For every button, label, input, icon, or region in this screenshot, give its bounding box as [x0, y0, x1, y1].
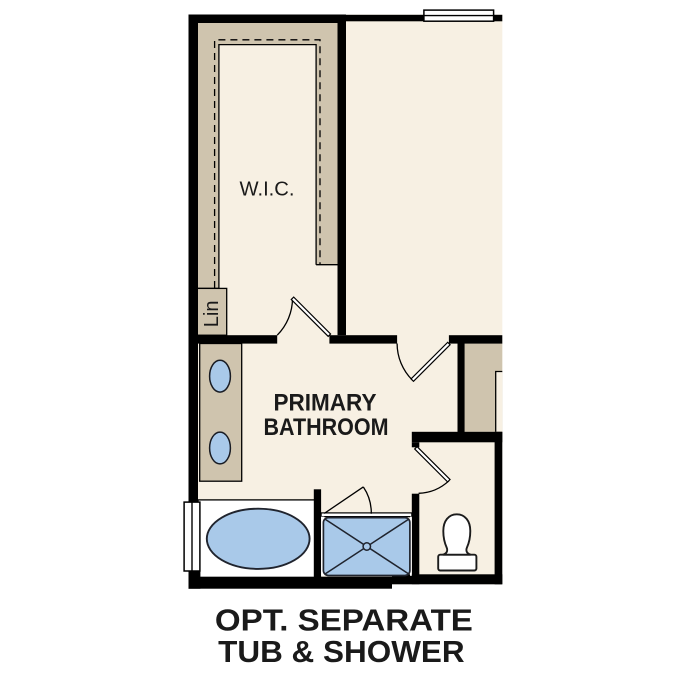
svg-text:W.I.C.: W.I.C.: [240, 178, 295, 200]
svg-text:TUB & SHOWER: TUB & SHOWER: [218, 635, 465, 669]
svg-text:BATHROOM: BATHROOM: [264, 414, 389, 441]
svg-text:OPT. SEPARATE: OPT. SEPARATE: [215, 603, 473, 637]
svg-text:Lin: Lin: [201, 300, 223, 327]
svg-text:PRIMARY: PRIMARY: [274, 389, 377, 416]
